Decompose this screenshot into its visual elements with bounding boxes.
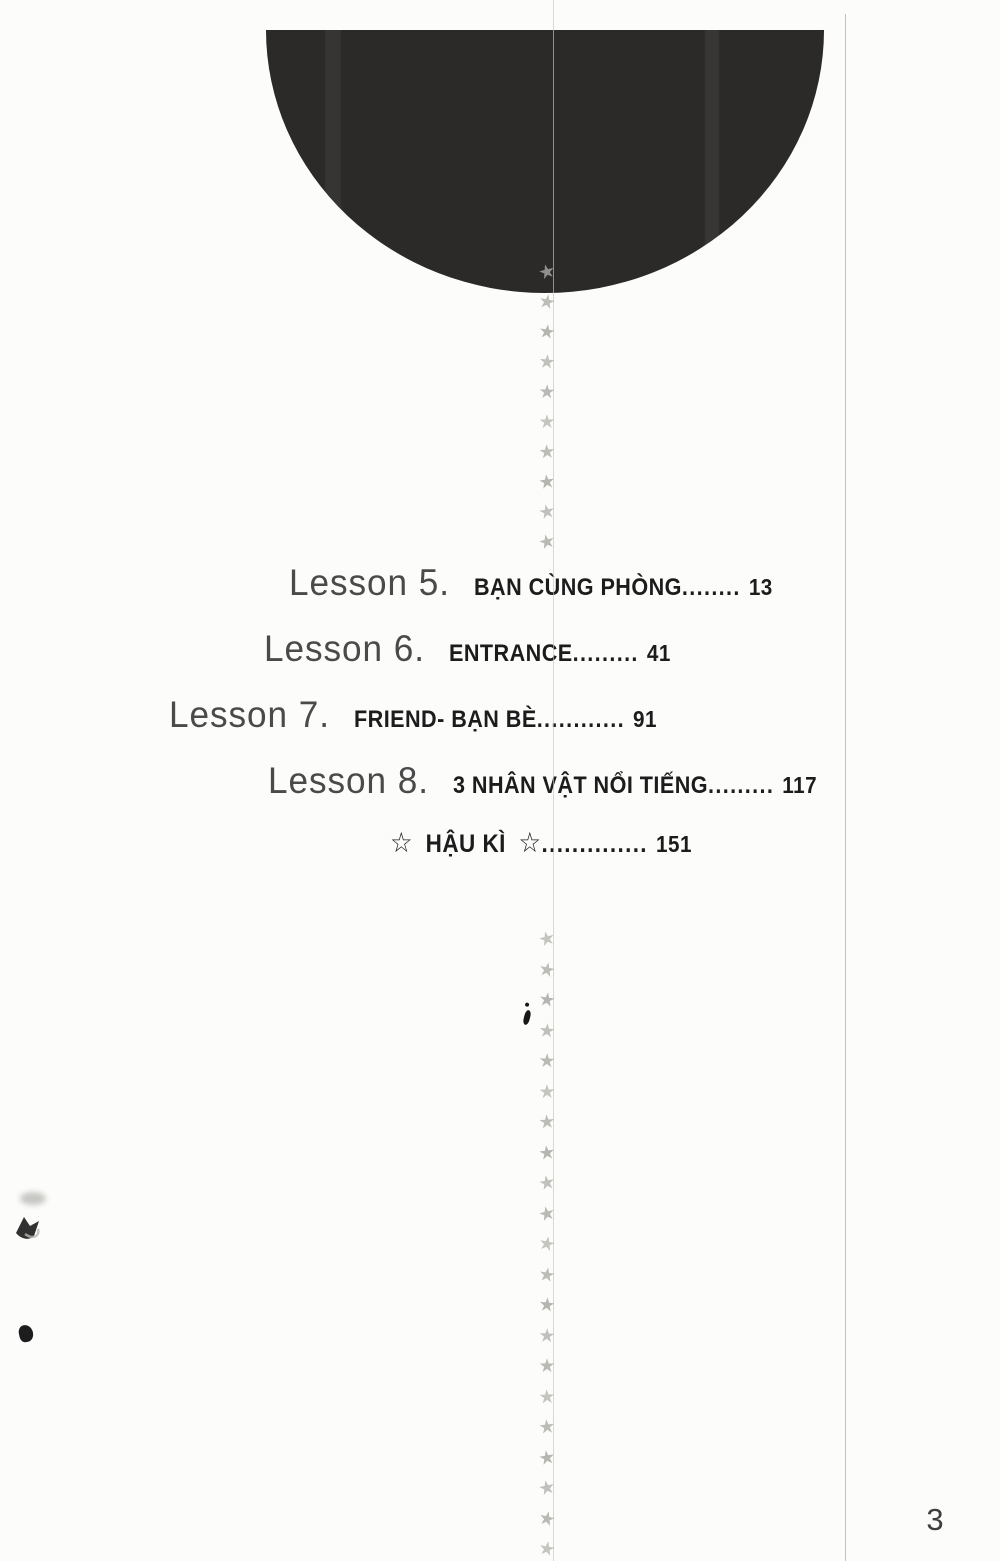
- star-icon: ★: [536, 1416, 558, 1438]
- star-icon: ★: [536, 471, 558, 493]
- epilogue-entry: ☆HẬU KÌ☆..............151: [390, 826, 692, 859]
- star-icon: ★: [535, 1537, 558, 1560]
- star-icon: ★: [535, 1507, 559, 1531]
- chapter-title: BẠN CÙNG PHÒNG: [474, 574, 682, 602]
- dot-leader: ..............: [541, 830, 647, 859]
- star-icon: ★: [536, 1020, 558, 1042]
- star-icon: ★: [535, 1232, 559, 1256]
- dot-leader: ........: [682, 574, 741, 602]
- star-icon: ★: [535, 958, 558, 981]
- star-icon: ★: [537, 1051, 558, 1072]
- star-icon: ★: [536, 1111, 557, 1132]
- star-icon: ★: [535, 927, 559, 951]
- ink-blot: [17, 1324, 34, 1344]
- star-icon: ★: [536, 1294, 558, 1316]
- star-icon: ★: [536, 351, 558, 373]
- black-semicircle-decoration: [266, 30, 824, 293]
- page-ref: 117: [783, 772, 818, 799]
- chapter-entry: ENTRANCE.........41: [449, 640, 671, 668]
- star-icon: ★: [536, 989, 559, 1012]
- scanned-toc-page: ★★★★★★★★★★ ★★★★★★★★★★★★★★★★★★★★★ Lesson …: [0, 0, 1000, 1561]
- page-ref: 91: [633, 706, 657, 733]
- star-icon: ★: [536, 1263, 559, 1286]
- star-icon: ★: [536, 1141, 558, 1163]
- outline-star-icon: ☆: [518, 826, 541, 859]
- ink-smudge: [20, 1192, 46, 1205]
- dot-leader: .........: [573, 640, 639, 668]
- page-ref: 151: [656, 831, 692, 858]
- star-icon: ★: [535, 1171, 558, 1194]
- star-icon: ★: [535, 500, 558, 523]
- scan-edge-line: [845, 14, 846, 1561]
- star-icon: ★: [535, 1476, 559, 1500]
- star-icon: ★: [536, 1386, 557, 1407]
- chapter-title: FRIEND- BẠN BÈ: [354, 706, 537, 734]
- star-icon: ★: [536, 441, 557, 462]
- ink-mark: [522, 1009, 531, 1025]
- outline-star-icon: ☆: [390, 826, 413, 859]
- lesson-label: Lesson 7.: [169, 694, 330, 736]
- star-icon: ★: [535, 290, 558, 313]
- dot-leader: ............: [537, 706, 625, 734]
- page-ref: 13: [749, 574, 773, 601]
- star-icon: ★: [535, 1202, 559, 1226]
- star-icon: ★: [537, 1356, 557, 1376]
- dot-leader: .........: [708, 772, 774, 800]
- chapter-entry: FRIEND- BẠN BÈ............91: [354, 706, 657, 734]
- star-icon: ★: [537, 412, 557, 432]
- toc-row-lesson-5: Lesson 5. BẠN CÙNG PHÒNG........13: [289, 562, 806, 604]
- star-icon: ★: [537, 1081, 557, 1101]
- toc-row-epilogue: ☆HẬU KÌ☆..............151: [374, 826, 725, 859]
- lesson-label: Lesson 5.: [289, 562, 450, 604]
- chapter-entry: 3 NHÂN VẬT NỔI TIẾNG.........117: [453, 772, 817, 800]
- page-ref: 41: [647, 640, 671, 667]
- star-icon: ★: [536, 1325, 557, 1346]
- star-icon: ★: [537, 382, 558, 403]
- toc-row-lesson-8: Lesson 8. 3 NHÂN VẬT NỔI TIẾNG.........1…: [268, 760, 858, 802]
- epilogue-title: HẬU KÌ: [426, 830, 506, 859]
- toc-row-lesson-6: Lesson 6. ENTRANCE.........41: [264, 628, 696, 670]
- star-icon: ★: [535, 530, 559, 554]
- lesson-label: Lesson 6.: [264, 628, 425, 670]
- ink-squiggle: [13, 1212, 47, 1248]
- star-icon: ★: [536, 321, 559, 344]
- star-icon: ★: [536, 1446, 559, 1469]
- chapter-title: ENTRANCE: [449, 640, 573, 668]
- chapter-title: 3 NHÂN VẬT NỔI TIẾNG: [453, 772, 708, 800]
- chapter-entry: BẠN CÙNG PHÒNG........13: [474, 574, 773, 602]
- lesson-label: Lesson 8.: [268, 760, 429, 802]
- page-number: 3: [905, 1502, 965, 1538]
- toc-row-lesson-7: Lesson 7. FRIEND- BẠN BÈ............91: [169, 694, 691, 736]
